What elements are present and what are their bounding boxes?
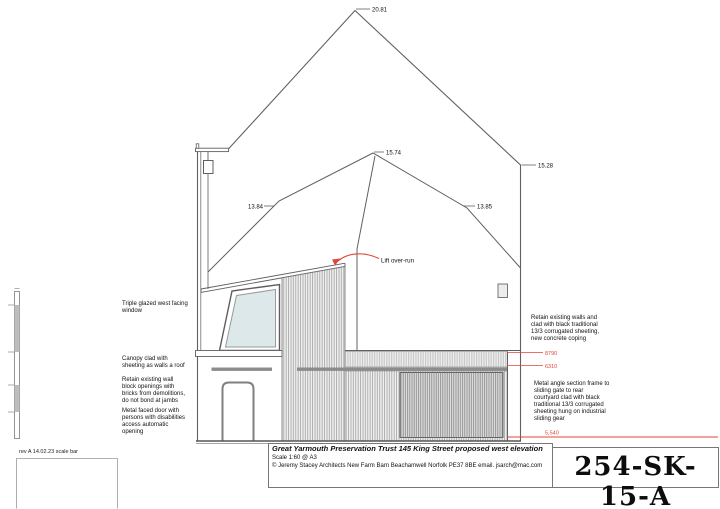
parapet-cap	[196, 148, 229, 151]
dim-left-slope: 13.84	[248, 205, 264, 211]
callout-wall: Retain existing wall block openings with…	[122, 377, 188, 405]
shadow-strip-right	[297, 368, 508, 371]
lift-arrow	[338, 254, 379, 261]
sliding-gate	[400, 373, 503, 438]
revision-box	[17, 459, 118, 509]
callout-door: Metal faced door with persons with disab…	[122, 408, 188, 436]
callout-sliding-gate: Metal angle section frame to sliding gat…	[534, 381, 610, 422]
lift-shaft-cladding	[282, 267, 345, 442]
sheet-copyright: © Jeremy Stacey Architects New Farm Barn…	[272, 463, 552, 469]
dim-ridge: 20.81	[372, 8, 388, 14]
revision-note: rev A 14.02.23 scale bar	[19, 449, 78, 455]
callout-retain-walls: Retain existing walls and clad with blac…	[531, 315, 607, 343]
drawing-number: 254-SK-15-A	[553, 452, 718, 509]
small-window	[498, 284, 508, 298]
level-mid: 6310	[545, 364, 557, 370]
dim-right-slope: 13.85	[477, 205, 493, 211]
level-ground: 5,540	[545, 431, 559, 437]
entrance-door	[223, 383, 254, 442]
canopy-band	[196, 351, 283, 357]
callout-window: Triple glazed west facing window	[122, 301, 188, 315]
elevation-drawing-sheet: 20.81 15.74 15.28 13.84 13.85 Lift over-…	[0, 0, 720, 509]
callout-canopy: Canopy clad with sheeting as walls a roo…	[122, 356, 188, 370]
sheet-title: Great Yarmouth Preservation Trust 145 Ki…	[272, 444, 550, 453]
sheet-scale: Scale 1:60 @ A3	[272, 455, 550, 461]
shadow-strip-left	[212, 368, 273, 371]
lift-over-run-label: Lift over-run	[381, 258, 415, 265]
elevation-drawing: 20.81 15.74 15.28 13.84 13.85 Lift over-…	[0, 0, 720, 509]
coping-corrugated-band	[345, 352, 508, 368]
scale-bar	[8, 289, 20, 439]
dimension-annotations: 20.81 15.74 15.28 13.84 13.85	[248, 8, 554, 211]
parapet-finial	[196, 144, 199, 148]
dim-right-eave: 15.28	[538, 164, 554, 170]
flue-box	[204, 161, 214, 174]
level-coping: 8790	[545, 351, 557, 357]
dim-inner-ridge: 15.74	[386, 151, 402, 157]
